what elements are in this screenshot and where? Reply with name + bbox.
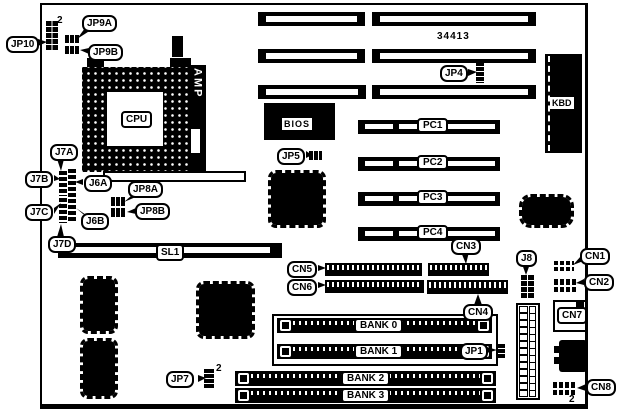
- callout-cn3: CN3: [451, 238, 481, 255]
- callout-cn2: CN2: [584, 274, 614, 291]
- pointer-jp4: [468, 69, 477, 76]
- pointer-jp7: [198, 375, 206, 382]
- callout-jp8a: JP8A: [128, 181, 163, 198]
- callout-jp8b: JP8B: [135, 203, 170, 220]
- callout-cn4: CN4: [463, 304, 493, 321]
- pointer-cn5: [318, 265, 326, 271]
- pointer-j7b: [54, 175, 60, 181]
- pointer-cn8: [577, 384, 586, 391]
- callout-cn5: CN5: [287, 261, 317, 278]
- callout-j7b: J7B: [25, 171, 53, 188]
- pointer-j6a: [75, 179, 83, 185]
- cn7-label: CN7: [557, 307, 587, 324]
- callout-jp7: JP7: [166, 371, 194, 388]
- pointer-j7c: [54, 203, 61, 214]
- pointer-jp1: [487, 347, 497, 353]
- callout-j7c: J7C: [25, 204, 53, 221]
- callout-jp5: JP5: [277, 148, 305, 165]
- callout-cn6: CN6: [287, 279, 317, 296]
- callout-jp1: JP1: [460, 343, 488, 360]
- callout-j6a: J6A: [84, 175, 112, 192]
- callout-j8: J8: [516, 250, 537, 267]
- pointer-jp5: [306, 151, 312, 158]
- callout-jp4: JP4: [440, 65, 468, 82]
- cpu-label: CPU: [121, 111, 152, 128]
- pointer-cn2: [576, 279, 584, 285]
- callout-pointers: [0, 0, 620, 416]
- pointer-cn6: [318, 282, 326, 288]
- callout-jp9b: JP9B: [88, 44, 123, 61]
- motherboard-diagram: 34413 KBD BIOS CPU AMP 2 PC1 PC2 PC3 PC4: [0, 0, 620, 416]
- sl1-label: SL1: [156, 244, 184, 261]
- callout-j7a: J7A: [50, 144, 78, 161]
- callout-jp9a: JP9A: [82, 15, 117, 32]
- callout-cn8: CN8: [586, 379, 616, 396]
- callout-jp10: JP10: [6, 36, 39, 53]
- callout-j6b: J6B: [81, 213, 109, 230]
- callout-j7d: J7D: [48, 236, 76, 253]
- jp7-pin2-marker: 2: [216, 364, 222, 374]
- pointer-jp10: [38, 39, 47, 46]
- cn8-pin2-marker: 2: [569, 395, 575, 405]
- callout-cn1: CN1: [580, 248, 610, 265]
- jp10-pin2-marker: 2: [57, 16, 63, 26]
